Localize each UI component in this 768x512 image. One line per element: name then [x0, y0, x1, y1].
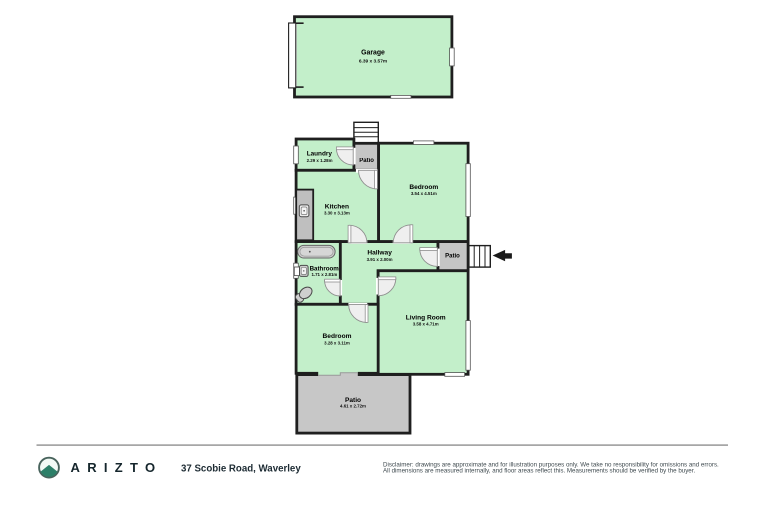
svg-text:3.58 x 4.71m: 3.58 x 4.71m: [413, 322, 439, 327]
svg-text:Patio: Patio: [445, 254, 460, 260]
svg-text:4.61 x 2.72m: 4.61 x 2.72m: [340, 403, 366, 408]
svg-text:37 Scobie Road, Waverley: 37 Scobie Road, Waverley: [181, 463, 301, 474]
svg-text:All dimensions are measured in: All dimensions are measured internally, …: [383, 468, 695, 475]
svg-text:3.54 x 4.51m: 3.54 x 4.51m: [411, 191, 437, 196]
svg-text:3.28 x 3.11m: 3.28 x 3.11m: [324, 340, 350, 345]
svg-text:Bedroom: Bedroom: [323, 333, 352, 340]
svg-text:3.30 x 3.13m: 3.30 x 3.13m: [324, 210, 350, 215]
svg-text:Hallway: Hallway: [367, 250, 392, 257]
svg-text:Kitchen: Kitchen: [325, 203, 349, 210]
svg-text:Patio: Patio: [359, 158, 374, 164]
svg-text:3.91 x 2.00m: 3.91 x 2.00m: [367, 257, 393, 262]
svg-text:1.71 x 2.81m: 1.71 x 2.81m: [311, 272, 337, 277]
svg-text:Laundry: Laundry: [307, 151, 333, 158]
svg-text:6.39 x 3.57m: 6.39 x 3.57m: [359, 58, 387, 64]
svg-text:2.29 x 1.28m: 2.29 x 1.28m: [307, 158, 333, 163]
svg-text:ARIZTO: ARIZTO: [71, 460, 163, 475]
svg-text:Living Room: Living Room: [406, 315, 446, 322]
svg-text:Garage: Garage: [361, 50, 385, 57]
